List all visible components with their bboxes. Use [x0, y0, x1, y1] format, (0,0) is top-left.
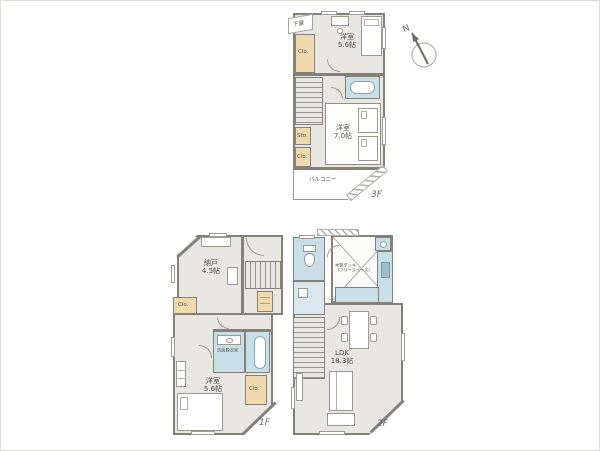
bedroom3f-top-name: 洋室	[340, 33, 354, 41]
closet-3f-mid: Clo.	[295, 147, 311, 167]
bedroom3f-btm-label: 洋室 7.0帖	[328, 124, 358, 141]
stool-icon	[337, 28, 343, 34]
sofa-line	[336, 372, 337, 411]
closet-3f-top: Clo.	[295, 34, 315, 73]
storage-3f: Sto.	[295, 127, 311, 145]
sanitary-room-3f	[345, 76, 380, 99]
closet-3f-mid-label: Clo.	[297, 154, 307, 161]
wall-segment	[293, 167, 385, 170]
pillow-icon	[364, 19, 379, 26]
ldk-size: 18.3帖	[331, 357, 354, 365]
pillow-icon	[361, 111, 367, 119]
ldk-label: LDK 18.3帖	[323, 349, 361, 366]
closet-1f-left-label: Clo.	[178, 302, 188, 309]
shelf-icon	[176, 361, 186, 387]
pillow-icon	[361, 139, 367, 147]
bathtub-icon	[254, 336, 266, 369]
floorplan-canvas: 下屋 洋室 5.6帖 Clo. Sto. Clo.	[0, 0, 600, 451]
chair-icon	[341, 333, 348, 342]
geya-label: 下屋	[293, 20, 304, 29]
wash-corner-2f	[293, 281, 325, 315]
window	[321, 11, 337, 15]
compass-north-letter: N	[401, 23, 411, 35]
chair-icon	[341, 316, 348, 325]
bedroom3f-top-label: 洋室 5.6帖	[329, 33, 365, 50]
tv-board-icon	[296, 373, 303, 401]
window	[382, 117, 386, 145]
stairs-3f	[295, 77, 323, 125]
north-compass-icon: N	[399, 19, 447, 73]
shelf-icon	[201, 237, 231, 247]
wall-segment	[213, 329, 273, 332]
door-arc	[327, 245, 339, 257]
chair-icon	[370, 333, 377, 342]
window	[191, 431, 215, 435]
window	[319, 431, 345, 435]
floor-2-plan: 木製デッキ （フリースペース） LDK 18.3帖 2F	[289, 225, 419, 443]
toilet-tank	[303, 245, 316, 252]
dining-table-icon	[349, 311, 369, 349]
kitchen-counter	[377, 251, 393, 303]
bed-icon	[177, 393, 223, 431]
closet-1f-btm: Clo.	[245, 375, 267, 405]
bed-icon	[358, 108, 378, 133]
bedroom3f-btm-size: 7.0帖	[334, 132, 352, 140]
storeroom-size: 4.5帖	[202, 267, 220, 275]
bathtub-icon	[350, 81, 375, 94]
sink-icon	[298, 288, 308, 298]
window	[291, 387, 295, 409]
storeroom-label: 納戸 4.5帖	[193, 259, 229, 276]
closet-1f-btm-label: Clo.	[249, 386, 259, 393]
floor-3-tag: 3F	[371, 190, 382, 200]
floor-1-tag: 1F	[259, 418, 270, 428]
floor-3-plan: 下屋 洋室 5.6帖 Clo. Sto. Clo.	[285, 7, 405, 207]
bedroom1f-label: 洋室 5.6帖	[197, 377, 229, 394]
bed-icon	[361, 16, 382, 56]
entrance-step	[257, 291, 273, 312]
window	[171, 337, 175, 357]
window	[349, 11, 365, 15]
deck-note-line2: （フリースペース）	[335, 268, 373, 273]
bedroom1f-name: 洋室	[206, 377, 220, 385]
wall-segment	[241, 235, 244, 315]
stairs-1f	[245, 261, 281, 289]
bedroom3f-btm-room: 洋室 7.0帖	[325, 103, 381, 165]
toilet-room-2f	[293, 237, 325, 281]
shelf-line	[177, 370, 186, 371]
balcony-label: バルコニー	[309, 177, 336, 184]
ldk-name: LDK	[335, 349, 349, 357]
closet-3f-top-label: Clo.	[298, 49, 308, 56]
pillow-icon	[180, 397, 188, 410]
bedroom3f-btm-name: 洋室	[336, 124, 350, 132]
desk-icon	[331, 16, 349, 26]
kitchen-counter	[335, 287, 379, 303]
bathroom-1f	[245, 331, 270, 373]
window	[209, 233, 227, 237]
bedroom3f-top-size: 5.6帖	[338, 41, 356, 49]
basin	[380, 241, 387, 248]
toilet-icon	[304, 253, 315, 267]
sink-icon	[217, 335, 241, 345]
deck-sink	[375, 237, 391, 251]
storage-3f-label: Sto.	[297, 133, 308, 140]
floor-2-tag: 2F	[377, 419, 388, 429]
shelf-line	[177, 378, 186, 379]
window	[401, 333, 405, 361]
sofa-icon	[329, 371, 353, 411]
stairs-2f	[293, 317, 325, 379]
deck-note: 木製デッキ （フリースペース）	[335, 263, 373, 273]
storeroom-name: 納戸	[204, 259, 218, 267]
basin	[226, 338, 233, 343]
step-line	[260, 297, 270, 298]
floor-1-plan: 納戸 4.5帖 Clo. 洗面脱衣室 Clo.	[165, 225, 295, 443]
sofa-ottoman	[327, 413, 355, 426]
rail-hatch	[317, 229, 359, 236]
window	[171, 265, 175, 283]
kitchen-sink-icon	[381, 262, 390, 278]
window	[382, 27, 386, 49]
chair-icon	[370, 316, 377, 325]
window	[299, 235, 315, 239]
washroom-1f: 洗面脱衣室	[213, 331, 245, 373]
washroom-label: 洗面脱衣室	[217, 348, 238, 353]
step-line	[260, 303, 270, 304]
bed-icon	[358, 136, 378, 161]
